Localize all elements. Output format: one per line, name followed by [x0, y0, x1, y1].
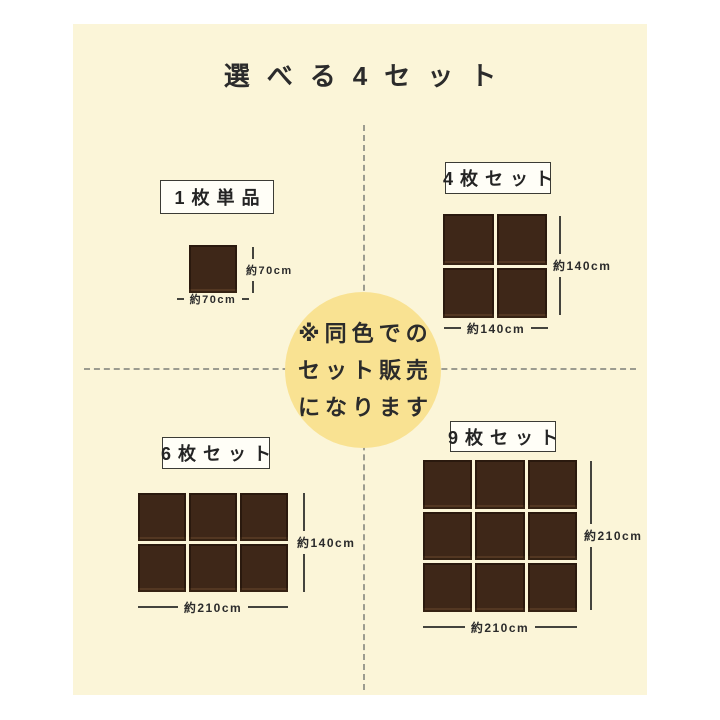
- width-dimension: 約140cm: [426, 320, 566, 336]
- dimension-tick: [559, 277, 561, 315]
- set-label: 1枚単品: [167, 184, 266, 210]
- width-dimension: 約210cm: [400, 619, 600, 635]
- width-label: 約70cm: [190, 291, 237, 307]
- tatami-tile: [528, 512, 577, 561]
- tatami-tile: [443, 268, 494, 319]
- dimension-tick: [252, 247, 254, 259]
- height-dimension: 約70cm: [246, 247, 293, 293]
- note-line-2: セット販売: [293, 352, 433, 389]
- dimension-tick: [590, 461, 592, 524]
- width-label: 約210cm: [471, 619, 529, 636]
- tile-grid-3x3: [423, 460, 577, 612]
- height-dimension: 約140cm: [297, 493, 355, 592]
- tatami-tile: [240, 544, 288, 592]
- dimension-line: [248, 606, 288, 608]
- tatami-tile: [189, 493, 237, 541]
- tatami-tile: [423, 460, 472, 509]
- width-label: 約210cm: [184, 599, 242, 616]
- tatami-tile: [189, 544, 237, 592]
- tatami-tile: [528, 563, 577, 612]
- dimension-tick: [303, 493, 305, 531]
- tatami-tile: [189, 245, 237, 293]
- set-label: 9枚セット: [441, 424, 565, 450]
- set-label-box: 4枚セット: [445, 162, 551, 194]
- tatami-tile: [497, 214, 548, 265]
- dimension-line: [177, 298, 184, 300]
- height-dimension: 約140cm: [553, 216, 611, 315]
- dimension-line: [531, 327, 548, 329]
- tile-grid-3x2: [138, 493, 288, 592]
- tatami-tile: [497, 268, 548, 319]
- height-dimension: 約210cm: [584, 461, 642, 610]
- dimension-line: [242, 298, 249, 300]
- set-label-box: 9枚セット: [450, 421, 556, 452]
- dimension-tick: [590, 547, 592, 610]
- tatami-tile: [443, 214, 494, 265]
- dimension-line: [138, 606, 178, 608]
- height-label: 約210cm: [584, 527, 642, 544]
- tile-grid-2x2: [443, 214, 547, 318]
- set-label: 6枚セット: [154, 440, 278, 466]
- dimension-line: [444, 327, 461, 329]
- height-label: 約140cm: [553, 257, 611, 274]
- width-dimension: 約210cm: [113, 599, 313, 615]
- height-label: 約70cm: [246, 262, 293, 278]
- tatami-tile: [423, 512, 472, 561]
- width-dimension: 約70cm: [143, 291, 283, 307]
- tatami-tile: [423, 563, 472, 612]
- dimension-line: [423, 626, 465, 628]
- set-label: 4枚セット: [436, 165, 560, 191]
- tatami-tile: [240, 493, 288, 541]
- width-label: 約140cm: [467, 320, 525, 337]
- tatami-tile: [475, 512, 524, 561]
- tatami-tile: [475, 563, 524, 612]
- set-label-box: 6枚セット: [162, 437, 270, 469]
- tatami-tile: [138, 544, 186, 592]
- infographic-canvas: 選べる4セット ※同色での セット販売 になります 1枚単品 約70cm 約70…: [0, 0, 720, 720]
- dimension-tick: [559, 216, 561, 254]
- same-color-note-circle: ※同色での セット販売 になります: [285, 292, 441, 448]
- tatami-tile: [138, 493, 186, 541]
- tatami-tile: [528, 460, 577, 509]
- tile-grid-1x1: [189, 245, 237, 293]
- note-line-3: になります: [293, 389, 433, 426]
- note-line-1: ※同色での: [293, 315, 432, 352]
- set-label-box: 1枚単品: [160, 180, 274, 214]
- dimension-tick: [303, 554, 305, 592]
- dimension-line: [535, 626, 577, 628]
- tatami-tile: [475, 460, 524, 509]
- height-label: 約140cm: [297, 534, 355, 551]
- page-title: 選べる4セット: [73, 56, 647, 93]
